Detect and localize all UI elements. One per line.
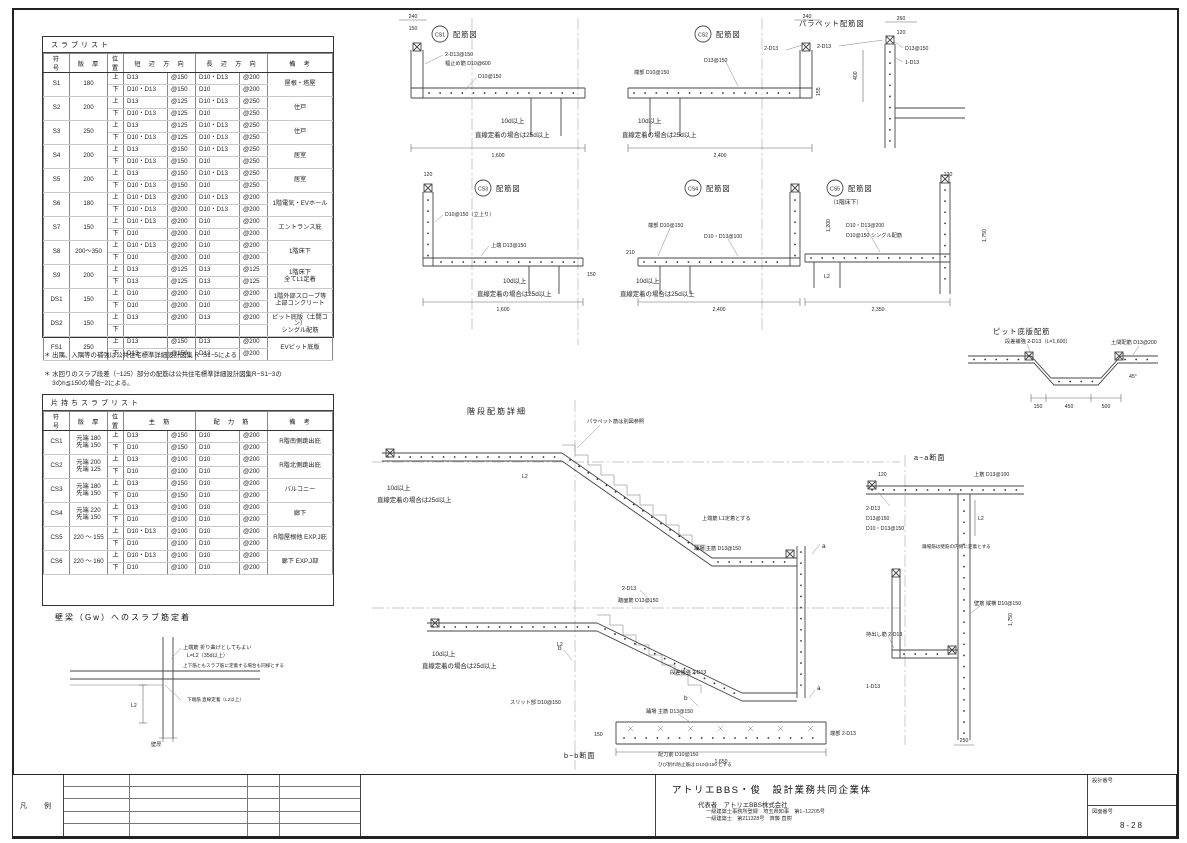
dim: 1,600 xyxy=(497,307,510,313)
table-cell: @250 xyxy=(240,109,268,121)
table-cell: @100 xyxy=(168,563,196,575)
table-cell: R階南側跳出庇 xyxy=(268,431,333,455)
table-cell: D13 xyxy=(124,265,168,277)
note: 直線定着の場合は25d以上 xyxy=(620,289,695,298)
detail-parapet-title: パラペット配筋図 xyxy=(799,19,865,28)
anno: 段差補強 2-D13 xyxy=(670,668,706,676)
table-row: DS1150上D10@200D10@2001階外部スロープ等 上部コンクリート xyxy=(44,289,333,301)
table-cell: 150 xyxy=(70,289,108,313)
table-cell: 下 xyxy=(108,443,124,455)
table-header: 位置 xyxy=(108,54,124,73)
table-cell: @125 xyxy=(240,277,268,289)
table-cell: @200 xyxy=(240,515,268,527)
table-cell: D10・D13 xyxy=(196,145,240,157)
table-cell: D10・D13 xyxy=(196,133,240,145)
table-cell xyxy=(124,325,168,337)
dim: 150 xyxy=(409,26,418,32)
table-cell: @100 xyxy=(168,467,196,479)
table-cell: @100 xyxy=(168,551,196,563)
table-cell: @250 xyxy=(240,133,268,145)
table-cell: @200 xyxy=(168,229,196,241)
dim: L2 xyxy=(824,274,830,280)
table-cell: @200 xyxy=(168,205,196,217)
table-cell: CS1 xyxy=(44,431,70,455)
table-cell: D10 xyxy=(124,467,168,479)
detail-aa-title: a−a断面 xyxy=(914,453,946,462)
table-cell: @125 xyxy=(168,277,196,289)
anno: 上端 D13@150 xyxy=(491,241,526,249)
table-cell: 上 xyxy=(108,217,124,229)
anno: パラペット筋は別図参照 xyxy=(587,417,644,425)
table-cell: 屋根・塔屋 xyxy=(268,73,333,97)
table-cell: S8 xyxy=(44,241,70,265)
table-header: 位置 xyxy=(108,412,124,431)
detail-pit-title: ピット底版配筋 xyxy=(993,327,1050,336)
anno: 2-D13 xyxy=(622,586,636,592)
license-line-1: 一級建築士事務所登録 埼玉県知事 第1−12205号 xyxy=(706,809,1087,816)
table-cell: CS2 xyxy=(44,455,70,479)
table-cell: D10 xyxy=(124,253,168,265)
anno: 踊場 主筋 D13@150 xyxy=(646,707,693,715)
detail-parapet: パラペット配筋図 260 120 400 2-D13 D13@150 1-D13 xyxy=(793,10,978,160)
section-marker-a: a xyxy=(822,543,826,550)
note: 10d以上 xyxy=(501,116,525,125)
table-cell: D13 xyxy=(124,169,168,181)
table-cell: D10 xyxy=(124,491,168,503)
slab-list-title: スラブリスト xyxy=(43,37,333,53)
table-cell: @200 xyxy=(240,479,268,491)
table-cell: @150 xyxy=(168,491,196,503)
table-cell: @150 xyxy=(168,443,196,455)
table-cell: 元端 220 先端 150 xyxy=(70,503,108,527)
dim: 1,600 xyxy=(492,153,505,159)
table-cell: D10 xyxy=(196,229,240,241)
table-cell: 220 〜 155 xyxy=(70,527,108,551)
table-cell: @150 xyxy=(168,169,196,181)
table-cell: 180 xyxy=(70,193,108,217)
dim: 2,400 xyxy=(714,153,727,159)
table-cell: D13 xyxy=(124,277,168,289)
table-cell: D10 xyxy=(196,181,240,193)
table-cell: D10・D13 xyxy=(124,157,168,169)
anno: D13@150 xyxy=(866,516,890,522)
dim: 120 xyxy=(878,472,887,478)
dim: 250 xyxy=(960,738,969,744)
table-cell: D10・D13 xyxy=(196,73,240,85)
table-cell: 廊下 xyxy=(268,503,333,527)
table-header: 符 号 xyxy=(44,412,70,431)
table-cell: 上 xyxy=(108,265,124,277)
table-header: 備 考 xyxy=(268,412,333,431)
table-cell: @200 xyxy=(240,539,268,551)
anno: 2-D13@150 xyxy=(445,52,473,58)
table-cell: @200 xyxy=(240,551,268,563)
table-header: 短 辺 方 向 xyxy=(124,54,196,73)
table-row: S5200上D13@150D10・D13@250居室 xyxy=(44,169,333,181)
footnotes: ＊ 出隅、入隅等の補強は公共住宅標準詳細設計図集 R−S1−5による ＊ 水回り… xyxy=(44,341,354,399)
dim: 1,750 xyxy=(1008,613,1014,626)
table-cell: 1階電気・EVホール xyxy=(268,193,333,217)
table-cell: D13 xyxy=(124,479,168,491)
anno: 配力筋 D10@150 xyxy=(658,750,699,758)
detail-cs5-label: CS5 xyxy=(830,187,840,193)
anno: 2-D13 xyxy=(866,506,880,512)
table-cell: @200 xyxy=(240,467,268,479)
table-cell: D10・D13 xyxy=(196,169,240,181)
table-cell: 上 xyxy=(108,431,124,443)
table-cell: D10・D13 xyxy=(124,527,168,539)
table-cell: 下 xyxy=(108,515,124,527)
table-cell: 200 xyxy=(70,145,108,169)
table-cell: D10・D13 xyxy=(196,193,240,205)
table-cell: @200 xyxy=(240,443,268,455)
table-cell: D10 xyxy=(196,455,240,467)
dim: 260 xyxy=(897,16,906,22)
anno: D10@150 xyxy=(478,74,502,80)
table-cell: バルコニー xyxy=(268,479,333,503)
table-cell: @200 xyxy=(168,253,196,265)
note: 10d以上 xyxy=(387,483,411,492)
table-header: 主 筋 xyxy=(124,412,196,431)
gw-anchor-detail: 壁梁（Gw）へのスラブ筋定着 L2 上端筋 折り曲げとしてもよい L=L2（35… xyxy=(55,612,300,752)
gw-wall-label: 壁厚 xyxy=(151,740,161,747)
table-cell: @150 xyxy=(168,157,196,169)
dim: L2 xyxy=(978,516,984,522)
table-cell: @250 xyxy=(240,169,268,181)
table-cell: @100 xyxy=(168,503,196,515)
dim: 150 xyxy=(1034,404,1043,410)
detail-bb: b−b断面 踊場 主筋 D13@150 配力筋 D10@150 ひび割れ防止筋は… xyxy=(558,700,868,772)
anno: D10・D13@200 xyxy=(846,223,884,229)
detail-cs4-label: CS4 xyxy=(688,187,698,193)
table-cell: D10 xyxy=(196,301,240,313)
anno: 端部 2-D13 xyxy=(830,729,856,737)
table-cell: 上 xyxy=(108,313,124,325)
company-representative: 代表者 アトリエBBS株式会社 xyxy=(698,800,1087,809)
table-cell: D10 xyxy=(196,563,240,575)
anno: D10@150 シングル配筋 xyxy=(846,231,902,239)
detail-cs4-title: 配筋図 xyxy=(706,184,731,193)
anno: スリット部 D10@150 xyxy=(510,698,561,706)
table-cell: @125 xyxy=(240,265,268,277)
design-number-label: 設計番号 xyxy=(1092,777,1172,784)
table-cell: 1階外部スロープ等 上部コンクリート xyxy=(268,289,333,313)
anno: 踊場 主筋 D13@150 xyxy=(694,544,741,552)
note: 直線定着の場合は25d以上 xyxy=(475,130,550,139)
detail-cs3-title: 配筋図 xyxy=(496,184,521,193)
table-cell: @200 xyxy=(240,503,268,515)
data-table: 符 号版 厚位置短 辺 方 向長 辺 方 向備 考S1180上D13@150D1… xyxy=(43,53,333,361)
table-cell: @200 xyxy=(240,301,268,313)
cantilever-slab-list-body: 符 号版 厚位置主 筋配 力 筋備 考CS1元端 180 先端 150上D13@… xyxy=(43,411,333,575)
drawing-number-box: 図面番号 8-28 xyxy=(1088,805,1176,836)
detail-cs3: CS3 配筋図 120 D10@150（立上り） 上端 D13@150 150 … xyxy=(383,166,605,313)
table-cell: 元端 200 先端 125 xyxy=(70,455,108,479)
table-cell: @200 xyxy=(240,455,268,467)
table-header: 備 考 xyxy=(268,54,333,73)
table-cell: CS5 xyxy=(44,527,70,551)
table-cell: @100 xyxy=(168,455,196,467)
detail-cs2-label: CS2 xyxy=(698,33,708,39)
gw-anchor-drawing: L2 上端筋 折り曲げとしてもよい L=L2（35d以上） 上下筋ともスラブ筋に… xyxy=(55,627,295,747)
table-cell: 下 xyxy=(108,325,124,337)
table-cell: @125 xyxy=(168,133,196,145)
table-cell: 180 xyxy=(70,73,108,97)
anno: 幅止め筋 D10@600 xyxy=(445,59,491,67)
anno: D13@150 xyxy=(704,58,728,64)
footnote-2: ＊ 水回りのスラブ段差（−125）部分の配筋は公共住宅標準詳細設計図集R−S1−… xyxy=(44,370,354,389)
table-cell: 上 xyxy=(108,145,124,157)
table-cell: S1 xyxy=(44,73,70,97)
table-cell: 上 xyxy=(108,503,124,515)
table-cell: S2 xyxy=(44,97,70,121)
table-cell: 上 xyxy=(108,73,124,85)
table-cell: @100 xyxy=(168,515,196,527)
table-cell: D10 xyxy=(196,157,240,169)
table-cell: @200 xyxy=(240,253,268,265)
detail-cs5-subtitle: （1階床下） xyxy=(830,198,862,206)
table-cell: D10・D13 xyxy=(124,551,168,563)
table-cell: D13 xyxy=(124,431,168,443)
table-header: 配 力 筋 xyxy=(196,412,268,431)
table-cell: 上 xyxy=(108,527,124,539)
table-cell: ピット底版（土間コン） シングル配筋 xyxy=(268,313,333,337)
anno: 踏面筋 D13@150 xyxy=(618,596,659,604)
table-cell: D10 xyxy=(196,503,240,515)
table-cell: @200 xyxy=(240,73,268,85)
dim: L2 xyxy=(522,474,528,480)
table-cell: 200〜350 xyxy=(70,241,108,265)
dim: 120 xyxy=(897,30,906,36)
table-cell: D10・D13 xyxy=(196,97,240,109)
anno: D10@150（立上り） xyxy=(445,210,494,218)
table-cell: D13 xyxy=(124,121,168,133)
title-block: 凡 例 アトリエBBS・俊 設計業務共同企業体 代表者 アトリエBBS株式会社 … xyxy=(12,774,1177,837)
anno: 2-D13 xyxy=(817,44,831,50)
table-cell: D10 xyxy=(196,551,240,563)
table-row: CS5220 〜 155上D10・D13@100D10@200R階屋根他 EXP… xyxy=(44,527,333,539)
gw-anno-2: L=L2（35d以上） xyxy=(187,651,228,659)
table-cell: CS4 xyxy=(44,503,70,527)
detail-cs2-title: 配筋図 xyxy=(716,30,741,39)
table-row: S7150上D10・D13@200D10@200エントランス庇 xyxy=(44,217,333,229)
table-cell: DS1 xyxy=(44,289,70,313)
table-cell: D10 xyxy=(196,85,240,97)
table-cell: 下 xyxy=(108,85,124,97)
table-cell: D13 xyxy=(124,145,168,157)
table-row: S2200上D13@125D10・D13@250住戸 xyxy=(44,97,333,109)
table-cell: @200 xyxy=(240,205,268,217)
table-cell: @125 xyxy=(168,121,196,133)
detail-cs5: CS5 配筋図 （1階床下） 120 D10・D13@200 D10@150 シ… xyxy=(790,166,995,313)
table-cell: D10 xyxy=(196,289,240,301)
table-cell: D10・D13 xyxy=(124,193,168,205)
detail-pit: ピット底版配筋 段差補強 2-D13（L=1,600） 土間配筋 D13@200… xyxy=(953,322,1171,412)
anno: D10・D13@100 xyxy=(704,234,742,240)
table-cell: @150 xyxy=(168,431,196,443)
table-cell: D13 xyxy=(124,73,168,85)
table-cell: 元端 180 先端 150 xyxy=(70,479,108,503)
section-marker-a: a xyxy=(817,685,821,692)
license-line-2: 一級建築士 第211328号 斉藤 直樹 xyxy=(706,816,1087,823)
table-cell: D10・D13 xyxy=(124,217,168,229)
detail-bb-title: b−b断面 xyxy=(564,751,596,760)
dim: 150 xyxy=(587,272,596,278)
table-cell: D10 xyxy=(196,479,240,491)
table-row: CS2元端 200 先端 125上D13@100D10@200R階北側跳出庇 xyxy=(44,455,333,467)
number-boxes: 設計番号 図面番号 8-28 xyxy=(1087,775,1176,836)
dim: 450 xyxy=(1065,404,1074,410)
table-cell: @150 xyxy=(168,73,196,85)
anno: 持出し筋 2-D13 xyxy=(866,630,902,638)
note: 10d以上 xyxy=(432,649,456,658)
dim: 500 xyxy=(1102,404,1111,410)
anno: 壁筋 縦横 D10@150 xyxy=(974,599,1021,607)
table-cell: D10 xyxy=(196,539,240,551)
gw-anno-1: 上端筋 折り曲げとしてもよい xyxy=(183,643,251,651)
dim: 2,400 xyxy=(713,307,726,313)
dim: 2,350 xyxy=(872,307,885,313)
table-cell: @200 xyxy=(240,85,268,97)
slab-list-body: 符 号版 厚位置短 辺 方 向長 辺 方 向備 考S1180上D13@150D1… xyxy=(43,53,333,361)
table-cell: D10・D13 xyxy=(124,85,168,97)
table-cell: 下 xyxy=(108,181,124,193)
dim: 120 xyxy=(424,172,433,178)
table-cell: D10 xyxy=(124,229,168,241)
detail-cs3-label: CS3 xyxy=(478,187,488,193)
table-cell: S5 xyxy=(44,169,70,193)
table-cell: 1階床下 全てL1定着 xyxy=(268,265,333,289)
table-cell: D10・D13 xyxy=(196,121,240,133)
table-cell: 下 xyxy=(108,491,124,503)
gw-anchor-title: 壁梁（Gw）へのスラブ筋定着 xyxy=(55,612,300,623)
note: 10d以上 xyxy=(503,276,527,285)
table-cell: 200 xyxy=(70,265,108,289)
table-row: S1180上D13@150D10・D13@200屋根・塔屋 xyxy=(44,73,333,85)
table-header: 長 辺 方 向 xyxy=(196,54,268,73)
table-cell: 下 xyxy=(108,109,124,121)
table-cell: @200 xyxy=(168,241,196,253)
table-cell: @200 xyxy=(240,563,268,575)
table-cell: @200 xyxy=(240,431,268,443)
table-cell: D10 xyxy=(124,515,168,527)
table-cell: D10 xyxy=(124,563,168,575)
table-cell: @150 xyxy=(168,145,196,157)
table-cell: @200 xyxy=(240,313,268,325)
table-cell: D10 xyxy=(196,217,240,229)
table-cell: R階北側跳出庇 xyxy=(268,455,333,479)
table-cell: 1階床下 xyxy=(268,241,333,265)
table-cell: @200 xyxy=(168,193,196,205)
table-cell: D10・D13 xyxy=(124,109,168,121)
table-cell: D10 xyxy=(196,467,240,479)
table-row: S4200上D13@150D10・D13@250居室 xyxy=(44,145,333,157)
table-cell: 150 xyxy=(70,313,108,337)
table-cell: @200 xyxy=(240,193,268,205)
detail-cs1-title: 配筋図 xyxy=(453,30,478,39)
table-cell: 居室 xyxy=(268,145,333,169)
table-cell: D13 xyxy=(196,277,240,289)
table-cell: @200 xyxy=(240,491,268,503)
table-cell: D10 xyxy=(196,241,240,253)
table-row: S6180上D10・D13@200D10・D13@2001階電気・EVホール xyxy=(44,193,333,205)
table-cell: @200 xyxy=(168,217,196,229)
table-cell: D10 xyxy=(196,431,240,443)
table-cell: @200 xyxy=(240,527,268,539)
note: 直線定着の場合は25d以上 xyxy=(477,289,552,298)
detail-aa: a−a断面 120 2-D13 D13@150 D10・D13@150 上筋 D… xyxy=(862,448,1030,750)
table-cell: @100 xyxy=(168,539,196,551)
table-row: S9200上D13@125D13@1251階床下 全てL1定着 xyxy=(44,265,333,277)
note: 直線定着の場合は25d以上 xyxy=(377,495,452,504)
table-row: DS2150上D13@200D13@200ピット底版（土間コン） シングル配筋 xyxy=(44,313,333,325)
table-cell: S6 xyxy=(44,193,70,217)
table-cell: @250 xyxy=(240,181,268,193)
table-cell: @200 xyxy=(240,229,268,241)
slab-list-table: スラブリスト 符 号版 厚位置短 辺 方 向長 辺 方 向備 考S1180上D1… xyxy=(42,36,334,338)
table-cell: エントランス庇 xyxy=(268,217,333,241)
table-cell: @200 xyxy=(240,217,268,229)
table-row: CS6220 〜 160上D10・D13@100D10@200廊下 EXP.J部 xyxy=(44,551,333,563)
table-cell: 下 xyxy=(108,157,124,169)
table-cell: 下 xyxy=(108,467,124,479)
table-cell: D10 xyxy=(124,301,168,313)
table-cell: 下 xyxy=(108,133,124,145)
table-row: CS3元端 180 先端 150上D13@150D10@200バルコニー xyxy=(44,479,333,491)
table-header: 版 厚 xyxy=(70,54,108,73)
table-cell: @150 xyxy=(168,479,196,491)
table-cell: S7 xyxy=(44,217,70,241)
table-cell: @250 xyxy=(240,121,268,133)
table-cell: @200 xyxy=(240,289,268,301)
anno: 1-D13 xyxy=(905,60,919,66)
note: 直線定着の場合は25d以上 xyxy=(622,130,697,139)
anno: 端部 D10@150 xyxy=(634,68,669,76)
table-cell: 上 xyxy=(108,551,124,563)
table-row: CS4元端 220 先端 150上D13@100D10@200廊下 xyxy=(44,503,333,515)
table-cell: 居室 xyxy=(268,169,333,193)
table-cell: D13 xyxy=(124,97,168,109)
table-cell: @250 xyxy=(240,97,268,109)
table-cell: S9 xyxy=(44,265,70,289)
dim: 1,650 xyxy=(715,759,728,765)
table-cell: 150 xyxy=(70,217,108,241)
table-cell: @150 xyxy=(168,85,196,97)
table-cell: @150 xyxy=(168,181,196,193)
table-cell: 下 xyxy=(108,563,124,575)
table-cell: D10 xyxy=(196,527,240,539)
anno: D10・D13@150 xyxy=(866,526,904,532)
drawing-number-value: 8-28 xyxy=(1092,821,1172,830)
section-marker-b: b xyxy=(558,645,562,652)
company-name: アトリエBBS・俊 設計業務共同企業体 xyxy=(672,782,1087,796)
table-row: S8200〜350上D10・D13@200D10@2001階床下 xyxy=(44,241,333,253)
cantilever-slab-list-title: 片持ちスラブリスト xyxy=(43,395,333,411)
table-cell: 下 xyxy=(108,277,124,289)
table-cell: 下 xyxy=(108,253,124,265)
data-table: 符 号版 厚位置主 筋配 力 筋備 考CS1元端 180 先端 150上D13@… xyxy=(43,411,333,575)
table-cell: 上 xyxy=(108,97,124,109)
table-cell: CS6 xyxy=(44,551,70,575)
dim: 210 xyxy=(626,250,635,256)
detail-cs1: CS1 配筋図 240 150 2-D13@150 幅止め筋 D10@600 D… xyxy=(383,10,605,160)
table-cell: 上 xyxy=(108,455,124,467)
anno: D13@150 xyxy=(905,46,929,52)
table-cell: @200 xyxy=(168,289,196,301)
table-row: S3250上D13@125D10・D13@250住戸 xyxy=(44,121,333,133)
table-cell: D13 xyxy=(124,313,168,325)
table-cell: 上 xyxy=(108,193,124,205)
